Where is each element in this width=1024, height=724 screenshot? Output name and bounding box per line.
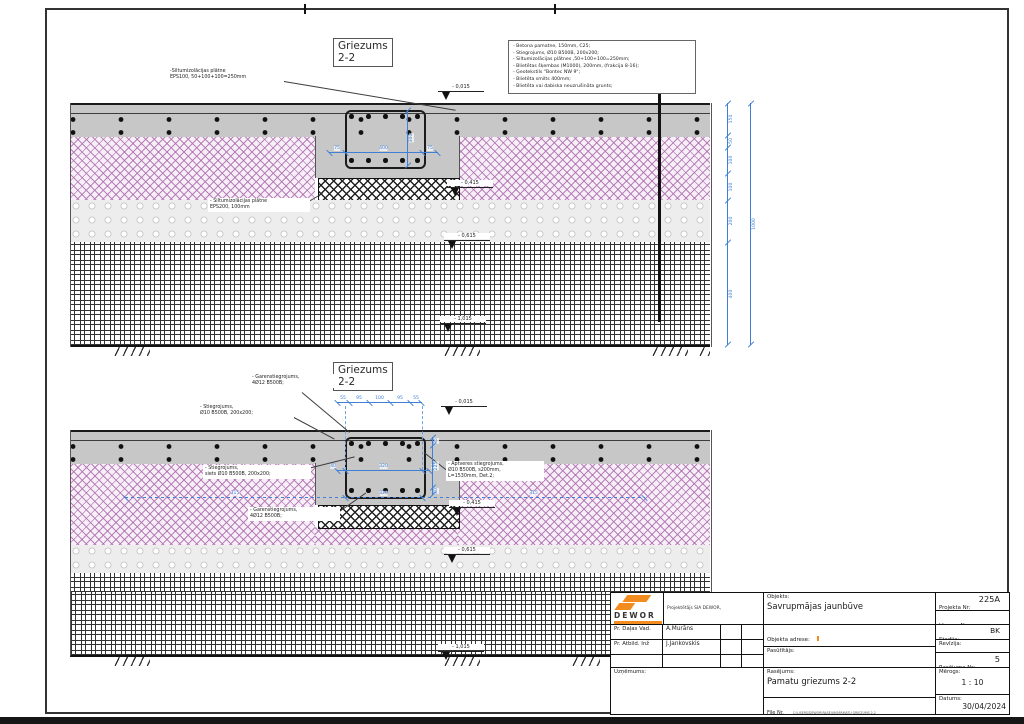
label-eps200: - Siltumizolācijas plātne EPS200, 100mm	[208, 198, 310, 212]
elevation-marker: - 0,415	[447, 180, 493, 196]
rebar-dot	[349, 488, 354, 493]
role2-label-cell: Pr. Atbild. Inž	[611, 640, 663, 655]
client-cell: Pasūtītājs:	[764, 647, 936, 668]
section-number: 2-2	[338, 52, 355, 64]
drawing-title-cell: Rasējums: Pamatu griezums 2-2	[764, 668, 936, 698]
elevation-marker: - 0,015	[441, 399, 487, 415]
label-eps100: -Siltumizolācijas plātne EPS100, 50+100+…	[168, 68, 284, 82]
empty-cell	[721, 655, 742, 668]
scale-value: 1 : 10	[939, 678, 1006, 687]
date-cell	[742, 640, 764, 655]
level-triangle-icon	[453, 508, 461, 516]
ground-hatch	[697, 347, 710, 356]
empty-cell	[742, 655, 764, 668]
role2-value-cell: J.Jankovskis	[663, 640, 721, 655]
rebar-dot	[415, 114, 420, 119]
sheet-number-cell: Rasējuma Nr: 5	[936, 653, 1009, 668]
date-cell	[742, 625, 764, 640]
rebar-dot	[383, 158, 388, 163]
label-mesh-sheet-rebar: - Stiegrojums, siets Ø10 B500B, 200x200;	[203, 465, 311, 479]
company-cell: Uzņēmums:	[611, 668, 764, 714]
label-longitudinal-rebar-top: - Garenstiegrojums, 4Ø12 B500B;	[250, 374, 339, 388]
level-triangle-icon	[451, 188, 459, 196]
object-cell: Objekts: Savrupmājas jaunbūve	[764, 593, 936, 625]
note-line: - Ģeotekstils "Bontec NW 9";	[513, 70, 691, 77]
sheet-number: 5	[995, 654, 1000, 664]
rebar-dot	[366, 441, 371, 446]
section-number: 2-2	[338, 376, 355, 388]
level-triangle-icon	[442, 652, 450, 660]
revision-cell: Revīzija:	[936, 640, 1009, 653]
label-longitudinal-rebar-bottom: - Garenstiegrojums, 4Ø12 B500B;	[248, 507, 340, 521]
note-line: - Blietēta vai dabiska neuzrušināta grun…	[513, 84, 691, 91]
label-stirrup-rebar: - Aptveres stiegrojums, Ø10 B500B, s200m…	[446, 461, 544, 481]
drawing-title: Pamatu griezums 2-2	[767, 676, 932, 686]
empty-cell	[611, 655, 663, 668]
scale-cell: Mērogs: 1 : 10	[936, 668, 1009, 695]
file-cell: File Nr. C:\USERS\DEWOR\RASEJUMI\PAMATU …	[764, 698, 936, 714]
insulation-band-right	[458, 137, 710, 200]
rebar-dot	[349, 158, 354, 163]
level-triangle-icon	[444, 324, 452, 332]
rebar-dot	[366, 488, 371, 493]
label-mesh-rebar: - Stiegrojums, Ø10 B500B, 200x200;	[198, 404, 294, 418]
rebar-dot	[366, 114, 371, 119]
ground-hatch	[112, 657, 150, 666]
level-triangle-icon	[448, 241, 456, 249]
rebar-dot	[415, 441, 420, 446]
empty-cell	[663, 655, 721, 668]
stage-cell: Stadija: BK	[936, 625, 1009, 640]
rebar-dot	[400, 158, 405, 163]
dewor-logo-icon	[623, 595, 652, 602]
object-name: Savrupmājas jaunbūve	[767, 601, 932, 611]
page-bottom-bar	[0, 717, 1024, 724]
contract-number-cell: Līguma Nr.: DEWOR/2024-2024	[936, 611, 1009, 625]
registration-tick	[554, 4, 556, 14]
level-triangle-icon	[448, 555, 456, 563]
dim-guide-line	[345, 406, 346, 470]
elevation-marker: - 1,015	[440, 316, 486, 332]
company-info: Projektētājs SIA DEWOR, Reģ. Nr 40203121…	[667, 606, 734, 625]
ground-hatch	[570, 657, 600, 666]
rebar-dot	[383, 441, 388, 446]
elevation-marker: - 1,015	[438, 644, 484, 660]
insulation-pad	[318, 178, 460, 202]
role1-value-cell: A.Murāns	[663, 625, 721, 640]
rebar-dot	[349, 441, 354, 446]
rebar-dot	[400, 441, 405, 446]
note-line: - Siltumizolācijas plātnes ,50+100+100=2…	[513, 57, 691, 64]
project-number-cell: Projekta Nr: 225A	[936, 593, 1009, 611]
rebar-dot	[383, 114, 388, 119]
section-label-box-bottom: Griezums 2-2	[333, 362, 393, 391]
insulation-band-under-pad	[315, 527, 458, 545]
file-path: C:\USERS\DEWOR\RASEJUMI\PAMATU GRIEZUMS …	[793, 711, 876, 714]
elevation-marker: - 0,015	[438, 84, 484, 100]
elevation-marker: - 0,615	[444, 547, 490, 563]
sand-band	[70, 592, 611, 657]
role1-label-cell: Pr. Daļas Vad.	[611, 625, 663, 640]
date-value: 30/04/2024	[939, 702, 1006, 711]
frame-top	[45, 8, 1008, 10]
level-triangle-icon	[442, 92, 450, 100]
logo-cell: DEWOR	[611, 593, 664, 625]
sand-band	[70, 573, 710, 592]
rebar-dot	[400, 488, 405, 493]
frame-left	[45, 8, 47, 713]
rebar-dot	[400, 114, 405, 119]
rebar-dot	[415, 488, 420, 493]
dewor-logo-icon	[615, 603, 636, 610]
gravel-band	[70, 545, 710, 573]
note-line: - Betona pamatne, 150mm, C25;	[513, 44, 691, 51]
section-title: Griezums	[338, 40, 388, 52]
rebar-dot	[366, 158, 371, 163]
registration-tick	[304, 4, 306, 14]
signature-cell	[721, 625, 742, 640]
insulation-band-left	[70, 137, 315, 200]
signature-cell	[721, 640, 742, 655]
ground-hatch	[112, 347, 150, 356]
rebar-dot	[349, 114, 354, 119]
company-info-cell: Projektētājs SIA DEWOR, Reģ. Nr 40203121…	[664, 593, 764, 625]
project-number: 225A	[979, 594, 1000, 604]
address-cell: Objekta adrese:	[764, 625, 936, 647]
title-block: DEWOR Projektētājs SIA DEWOR, Reģ. Nr 40…	[610, 592, 1010, 715]
elevation-marker: - 0,415	[449, 500, 495, 516]
notes-list: - Betona pamatne, 150mm, C25; - Stiegroj…	[508, 40, 696, 94]
cursor-artifact	[817, 636, 819, 641]
rebar-dot	[415, 158, 420, 163]
ground-hatch	[650, 347, 688, 356]
date-value-cell: Datums: 30/04/2024	[936, 695, 1009, 714]
brand-name: DEWOR	[614, 611, 660, 620]
level-triangle-icon	[445, 407, 453, 415]
elevation-marker: - 0,615	[444, 233, 490, 249]
dim-guide-line	[422, 406, 423, 470]
note-line: - Blietēta smilts 400mm;	[513, 77, 691, 84]
section-title: Griezums	[338, 364, 388, 376]
sand-band	[70, 242, 710, 347]
section-label-box-top: Griezums 2-2	[333, 38, 393, 67]
ground-hatch	[442, 347, 480, 356]
gravel-band	[70, 200, 710, 242]
stage-value: BK	[990, 626, 1000, 635]
